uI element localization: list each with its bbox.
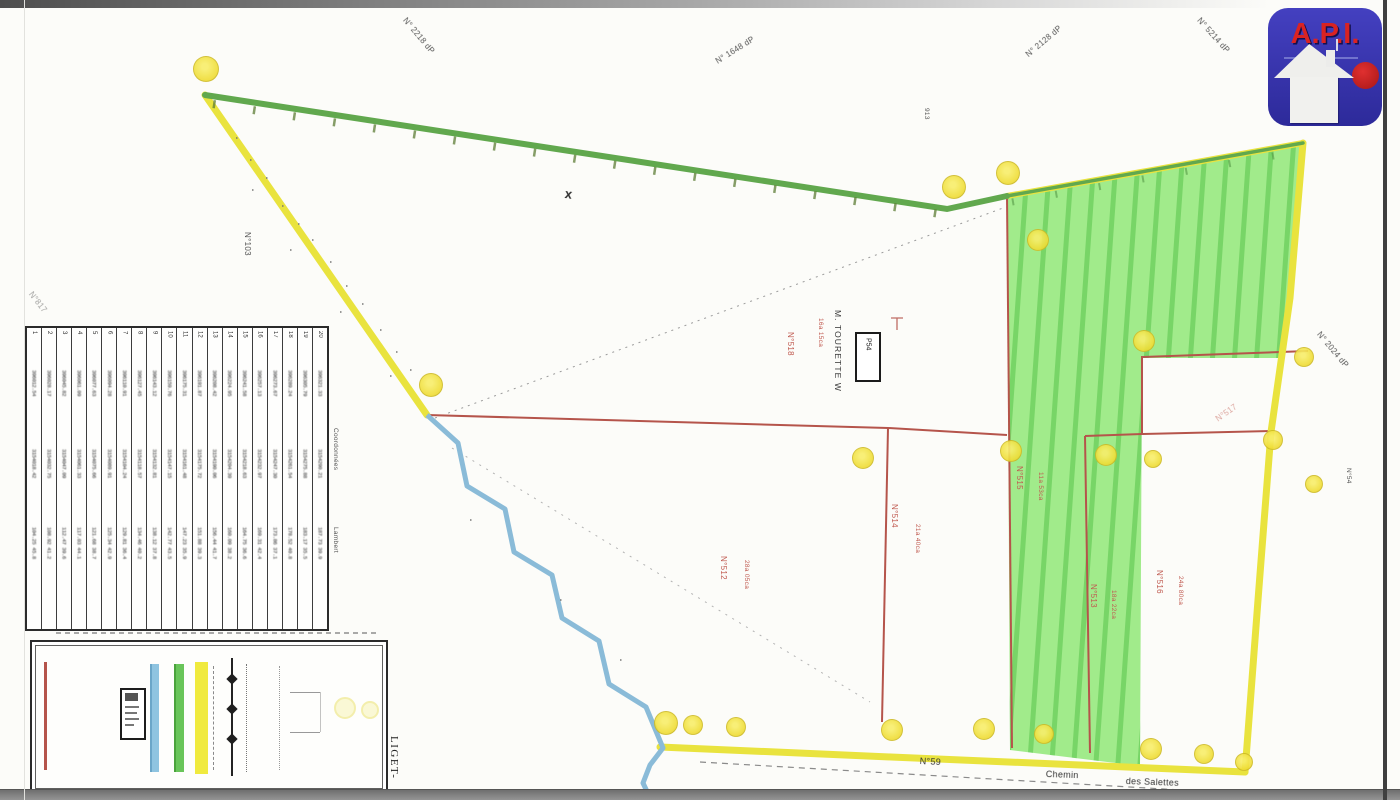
- scan-edge-bottom: [0, 789, 1400, 800]
- table-cell-text: 3154218.63: [241, 449, 248, 478]
- survey-point-marker: [942, 175, 966, 199]
- table-cell-text: 108.92 41.2: [46, 527, 53, 559]
- map-label: N°515: [1015, 466, 1024, 490]
- red-sun-icon: [1352, 62, 1379, 89]
- table-cell-text: 396208.42: [211, 370, 218, 396]
- table-cell-text: 112.47 39.6: [61, 527, 68, 559]
- table-cell-text: 117.03 44.1: [76, 527, 83, 559]
- table-column: 17396273.673154247.30173.86 37.1: [268, 328, 283, 629]
- legend-bracket-line: [290, 692, 320, 693]
- table-cell-text: 3154232.97: [256, 449, 263, 478]
- table-cell-text: 2: [46, 331, 52, 334]
- table-cell-text: 3154018.42: [31, 449, 38, 478]
- survey-point-marker: [1305, 475, 1323, 493]
- table-column: 4396061.093154061.33117.03 44.1: [72, 328, 87, 629]
- table-cell-text: 147.23 35.9: [181, 527, 188, 559]
- table-cell-text: 20: [317, 331, 323, 338]
- legend-bracket-line: [320, 692, 321, 732]
- table-cell-text: 396305.79: [301, 370, 308, 396]
- map-label: 24a 80ca: [1177, 576, 1184, 605]
- table-cell-text: 396028.17: [46, 370, 53, 396]
- survey-point-marker: [726, 717, 746, 737]
- table-cell-text: 1: [31, 331, 37, 334]
- scan-edge-left: [24, 0, 25, 800]
- table-cell-text: 183.17 35.5: [301, 527, 308, 559]
- table-cell-text: 396159.76: [166, 370, 173, 396]
- red-line: [427, 415, 1007, 435]
- table-cell-text: 3154104.24: [121, 449, 128, 478]
- table-cell-text: 3154247.30: [271, 449, 278, 478]
- table-column: 12396191.873154175.72151.88 39.3: [193, 328, 208, 629]
- table-cell-text: 17: [272, 331, 278, 338]
- table-cell-text: 3154075.66: [91, 449, 98, 478]
- legend-dotted-line: [246, 664, 247, 772]
- table-cell-text: 396321.33: [316, 370, 323, 396]
- table-cell-text: 396110.91: [121, 370, 128, 396]
- hedge-line: [205, 95, 1007, 209]
- table-cell-text: 396143.12: [151, 370, 158, 396]
- table-cell-text: 178.52 40.8: [286, 527, 293, 559]
- construction-dotted-line: [435, 208, 1003, 418]
- map-label: des Salettes: [1126, 776, 1179, 788]
- chimney-icon: [1326, 50, 1335, 67]
- antenna-icon: [1336, 39, 1338, 51]
- table-cell-text: 3154175.72: [196, 449, 203, 478]
- legend-diamond: [226, 733, 237, 744]
- table-cell-text: 4: [76, 331, 82, 334]
- table-cell-text: 3: [61, 331, 67, 334]
- map-label: 16a 15ca: [817, 318, 824, 347]
- table-cell-text: 396241.58: [241, 370, 248, 396]
- table-cell-text: 187.73 39.9: [316, 527, 323, 559]
- table-cell-text: 169.31 42.4: [256, 527, 263, 559]
- table-column: 2396028.173154032.75108.92 41.2: [42, 328, 57, 629]
- table-column: 8396127.453154118.57134.46 40.2: [132, 328, 147, 629]
- map-label: 11a 53ca: [1037, 472, 1044, 501]
- coordinate-table: 1396012.543154018.42104.25 45.82396028.1…: [25, 326, 329, 631]
- table-cell-text: 138.12 37.8: [151, 527, 158, 559]
- table-cell-text: 396191.87: [196, 370, 203, 396]
- stamp-mark: [125, 693, 138, 701]
- survey-point-marker: [193, 56, 219, 82]
- map-label: x: [564, 186, 574, 202]
- scanned-survey-plan: N° 2218 dPN° 1648 dPN° 2128 dPN° 5214 dP…: [0, 0, 1400, 800]
- map-label: 21a 40ca: [914, 524, 921, 553]
- map-label: Coordonnées: [332, 428, 339, 470]
- table-cell-text: 3154161.48: [181, 449, 188, 478]
- survey-point-marker: [973, 718, 995, 740]
- red-line: [1142, 431, 1272, 434]
- table-cell-text: 10: [166, 331, 172, 338]
- table-cell-text: 396094.28: [106, 370, 113, 396]
- survey-point-marker: [1263, 430, 1283, 450]
- table-cell-text: 5: [91, 331, 97, 334]
- table-cell-text: 396175.31: [181, 370, 188, 396]
- legend-wall-line: [44, 662, 47, 770]
- table-cell-text: 8: [136, 331, 142, 334]
- house-body-icon: [1290, 77, 1338, 123]
- map-label: M. TOURETTE W: [833, 310, 843, 392]
- survey-point-marker: [1194, 744, 1214, 764]
- table-cell-text: 396289.24: [286, 370, 293, 396]
- legend-faint-circle: [334, 697, 356, 719]
- table-cell-text: 9: [151, 331, 157, 334]
- table-cell-text: 151.88 39.3: [196, 527, 203, 559]
- map-label: Lambert: [332, 527, 339, 553]
- table-column: 6396094.283154089.91125.34 42.9: [102, 328, 117, 629]
- legend-stamp: [120, 688, 146, 740]
- table-column: 9396143.123154132.81138.12 37.8: [147, 328, 162, 629]
- table-cell-text: 396257.13: [256, 370, 263, 396]
- table-column: 11396175.313154161.48147.23 35.9: [177, 328, 192, 629]
- survey-point-marker: [1034, 724, 1054, 744]
- map-label: N°516: [1155, 570, 1164, 594]
- table-cell-text: 3154190.06: [211, 449, 218, 478]
- table-cell-text: 142.77 43.5: [166, 527, 173, 559]
- red-line: [882, 428, 888, 722]
- table-cell-text: 15: [242, 331, 248, 338]
- stamp-line: [125, 718, 139, 720]
- legend-bracket-line: [290, 732, 320, 733]
- table-column: 20396321.333154290.21187.73 39.9: [313, 328, 327, 629]
- table-column: 3396045.823154047.09112.47 39.6: [57, 328, 72, 629]
- table-cell-text: 3154061.33: [76, 449, 83, 478]
- table-cell-text: 3154204.39: [226, 449, 233, 478]
- scan-edge-top: [0, 0, 1270, 8]
- table-cell-text: 3154047.09: [61, 449, 68, 478]
- parcel-ref-box: P54: [855, 332, 881, 382]
- map-label: Chemin: [1046, 769, 1079, 780]
- map-label: N°54: [1345, 468, 1352, 484]
- legend-faint-circle: [361, 701, 379, 719]
- red-tick-mark: [891, 318, 903, 330]
- api-logo: A.P.I.: [1268, 8, 1382, 126]
- table-column: 13396208.423154190.06156.44 41.7: [208, 328, 223, 629]
- stream-line: [427, 415, 663, 800]
- house-roof-icon: [1274, 44, 1354, 78]
- stamp-line: [125, 724, 134, 726]
- table-cell-text: 11: [181, 331, 187, 337]
- table-cell-text: 3154118.57: [136, 449, 143, 478]
- table-cell-text: 173.86 37.1: [271, 527, 278, 559]
- table-cell-text: 396012.54: [31, 370, 38, 396]
- map-label: 28a 05ca: [743, 560, 750, 589]
- map-label: N°518: [786, 332, 795, 356]
- table-cell-text: 134.46 40.2: [136, 527, 143, 559]
- map-label: LIGET-: [388, 736, 400, 779]
- table-cell-text: 3154089.91: [106, 449, 113, 478]
- table-cell-text: 3154275.88: [301, 449, 308, 478]
- table-column: 5396077.633154075.66121.68 38.7: [87, 328, 102, 629]
- survey-point-marker: [1235, 753, 1253, 771]
- map-label: N°103: [243, 232, 252, 256]
- table-cell-text: 12: [197, 331, 203, 338]
- survey-point-marker: [419, 373, 443, 397]
- parcel-ref-label: P54: [865, 338, 872, 350]
- survey-point-marker: [1027, 229, 1049, 251]
- table-column: 1396012.543154018.42104.25 45.8: [27, 328, 42, 629]
- survey-point-marker: [1294, 347, 1314, 367]
- table-cell-text: 3154032.75: [46, 449, 53, 478]
- legend-box: [30, 640, 388, 794]
- construction-dotted-line: [452, 448, 870, 702]
- table-cell-text: 3154290.21: [316, 449, 323, 478]
- legend-diamond: [226, 703, 237, 714]
- table-cell-text: 121.68 38.7: [91, 527, 98, 559]
- table-cell-text: 104.25 45.8: [31, 527, 38, 559]
- map-label: N°59: [919, 756, 941, 767]
- survey-point-marker: [996, 161, 1020, 185]
- legend-diamond: [226, 673, 237, 684]
- table-cell-text: 396273.67: [271, 370, 278, 396]
- table-cell-text: 125.34 42.9: [106, 527, 113, 559]
- table-cell-text: 7: [121, 331, 127, 334]
- map-label: N°514: [890, 504, 899, 528]
- legend-boundary-swatch: [195, 662, 208, 774]
- survey-point-marker: [1000, 440, 1022, 462]
- map-label: N°513: [1089, 584, 1098, 608]
- survey-point-marker: [654, 711, 678, 735]
- table-cell-text: 3154132.81: [151, 449, 158, 478]
- table-cell-text: 396077.63: [91, 370, 98, 396]
- table-cell-text: 18: [287, 331, 293, 338]
- table-cell-text: 396224.95: [226, 370, 233, 396]
- survey-point-marker: [881, 719, 903, 741]
- house-icon: [1274, 44, 1354, 124]
- table-column: 7396110.913154104.24129.81 36.4: [117, 328, 132, 629]
- survey-point-marker: [1133, 330, 1155, 352]
- survey-point-marker: [1095, 444, 1117, 466]
- table-cell-text: 396045.82: [61, 370, 68, 396]
- table-cell-text: 19: [302, 331, 308, 338]
- table-column: 15396241.583154218.63164.75 36.6: [238, 328, 253, 629]
- table-cell-text: 6: [106, 331, 112, 334]
- table-column: 19396305.793154275.88183.17 35.5: [298, 328, 313, 629]
- stamp-line: [125, 706, 139, 708]
- survey-point-marker: [852, 447, 874, 469]
- table-column: 16396257.133154232.97169.31 42.4: [253, 328, 268, 629]
- survey-point-marker: [1144, 450, 1162, 468]
- table-cell-text: 16: [257, 331, 263, 338]
- table-cell-text: 396127.45: [136, 370, 143, 396]
- table-cell-text: 14: [227, 331, 233, 338]
- table-cell-text: 164.75 36.6: [241, 527, 248, 559]
- legend-dashed-line: [213, 666, 214, 770]
- table-cell-text: 396061.09: [76, 370, 83, 396]
- map-label: N°512: [719, 556, 728, 580]
- stamp-line: [125, 712, 137, 714]
- table-cell-text: 129.81 36.4: [121, 527, 128, 559]
- table-cell-text: 160.09 38.2: [226, 527, 233, 559]
- hedge-hatch-ticks: [213, 104, 940, 214]
- table-column: 14396224.953154204.39160.09 38.2: [223, 328, 238, 629]
- scan-edge-right: [1383, 0, 1387, 800]
- legend-dotted-line: [279, 666, 280, 770]
- table-cell-text: 156.44 41.7: [211, 527, 218, 559]
- table-cell-text: 3154147.15: [166, 449, 173, 478]
- legend-hedge-swatch: [174, 664, 184, 772]
- map-label: 913: [923, 108, 930, 120]
- table-column: 10396159.763154147.15142.77 43.5: [162, 328, 177, 629]
- table-cell-text: 13: [212, 331, 218, 338]
- legend-stream-swatch: [150, 664, 159, 772]
- survey-point-marker: [1140, 738, 1162, 760]
- map-label: 18a 22ca: [1110, 590, 1117, 619]
- table-column: 18396289.243154261.54178.52 40.8: [283, 328, 298, 629]
- table-cell-text: 3154261.54: [286, 449, 293, 478]
- survey-point-marker: [683, 715, 703, 735]
